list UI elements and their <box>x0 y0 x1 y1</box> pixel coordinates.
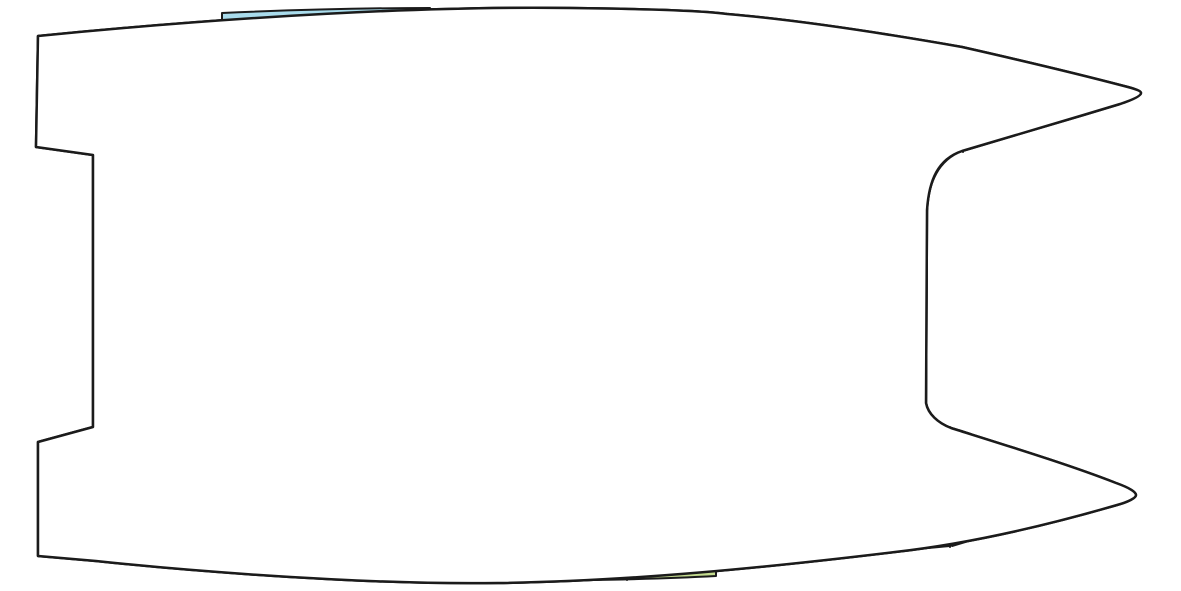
foredeck-boundary <box>926 151 962 405</box>
floor-plan-svg <box>0 0 1181 591</box>
hull-outline-overlay <box>36 8 1141 583</box>
catamaran-floor-plan <box>0 0 1181 591</box>
